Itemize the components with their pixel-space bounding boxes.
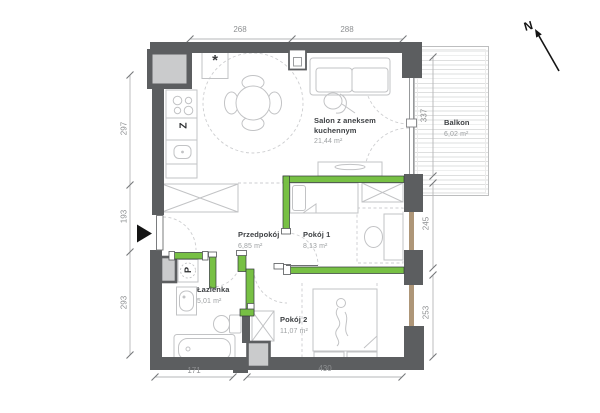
dim-right-245: 245: [422, 204, 431, 244]
label-balkon: Balkon 6,02 m²: [444, 118, 470, 139]
green-wall-room2-top: [287, 267, 404, 274]
dim-left-193: 193: [120, 197, 129, 237]
hallway-furniture: [162, 184, 238, 212]
dim-bottom-430: 430: [305, 364, 345, 373]
dim-left-297: 297: [120, 109, 129, 149]
label-salon: Salon z aneksem kuchennym 21,44 m²: [314, 116, 380, 147]
desk: [384, 214, 403, 260]
green-wall-bath-right-3: [240, 309, 254, 316]
green-wall-room1-left: [283, 176, 290, 233]
window-room2: [409, 285, 414, 326]
room2-bed: [313, 289, 377, 351]
wall-pier-right-b: [404, 250, 423, 285]
plan-linework: [0, 0, 600, 413]
entrance-door-swing: [163, 217, 196, 250]
dim-top-288: 288: [327, 25, 367, 34]
green-wall-room1-top: [283, 176, 404, 183]
bathroom-door-swing: [212, 258, 241, 287]
vent-box-inner: [294, 58, 302, 67]
entrance-door-leaf: [157, 216, 164, 251]
north-arrow-icon: [535, 29, 559, 71]
dim-right-337: 337: [420, 96, 429, 136]
lazienka-name: Łazienka: [197, 285, 229, 294]
pokoj1-name: Pokój 1: [303, 230, 330, 239]
balcony-door-latch: [407, 119, 417, 127]
washing-machine-letter: P: [183, 260, 193, 280]
green-wall-bath-top: [172, 253, 204, 260]
toilet: [214, 315, 242, 333]
wall-pier-topright: [402, 42, 422, 78]
wall-pier-right-a: [404, 174, 423, 212]
shaft-hall: [161, 257, 176, 282]
room1-bed: [290, 183, 358, 213]
sofa: [310, 58, 390, 95]
pokoj1-area: 8,13 m²: [303, 242, 330, 252]
salon-name: Salon z aneksem kuchennym: [314, 116, 376, 135]
wall-pier-right-c: [404, 326, 424, 370]
desk-chair: [365, 227, 383, 248]
shaft-bottom: [248, 342, 270, 367]
dim-right-253: 253: [422, 293, 431, 333]
entrance-arrow-icon: [137, 225, 152, 243]
przedpokoj-name: Przedpokój: [238, 230, 279, 239]
dishwasher-letter: Z: [179, 116, 190, 136]
wall-bathroom-lower: [242, 314, 250, 343]
bathroom-door-leaf: [210, 257, 217, 288]
floor-plan: Salon z aneksem kuchennym 21,44 m² Balko…: [0, 0, 600, 413]
kitchen-asterisk: *: [203, 52, 227, 69]
pokoj2-area: 11,07 m²: [280, 327, 308, 337]
dining-table: [236, 86, 270, 120]
dim-bottom-171: 171: [174, 366, 214, 375]
label-pokoj1: Pokój 1 8,13 m²: [303, 230, 330, 251]
dim-left-293: 293: [120, 283, 129, 323]
room2-door-swing: [254, 270, 287, 303]
balkon-name: Balkon: [444, 118, 470, 127]
label-pokoj2: Pokój 2 11,07 m²: [280, 315, 308, 336]
pokoj2-name: Pokój 2: [280, 315, 307, 324]
salon-area: 21,44 m²: [314, 137, 380, 147]
shaft-topleft: [153, 55, 187, 84]
window-room1: [409, 212, 414, 250]
balkon-area: 6,02 m²: [444, 130, 470, 140]
label-przedpokoj: Przedpokój 6,85 m²: [238, 230, 279, 251]
armchair-sketch: [324, 93, 355, 113]
label-lazienka: Łazienka 5,01 m²: [197, 285, 229, 306]
lazienka-area: 5,01 m²: [197, 297, 229, 307]
dim-top-268: 268: [220, 25, 260, 34]
wall-bottom-bump: [233, 357, 248, 373]
dining-set: [225, 76, 282, 131]
przedpokoj-area: 6,85 m²: [238, 242, 279, 252]
